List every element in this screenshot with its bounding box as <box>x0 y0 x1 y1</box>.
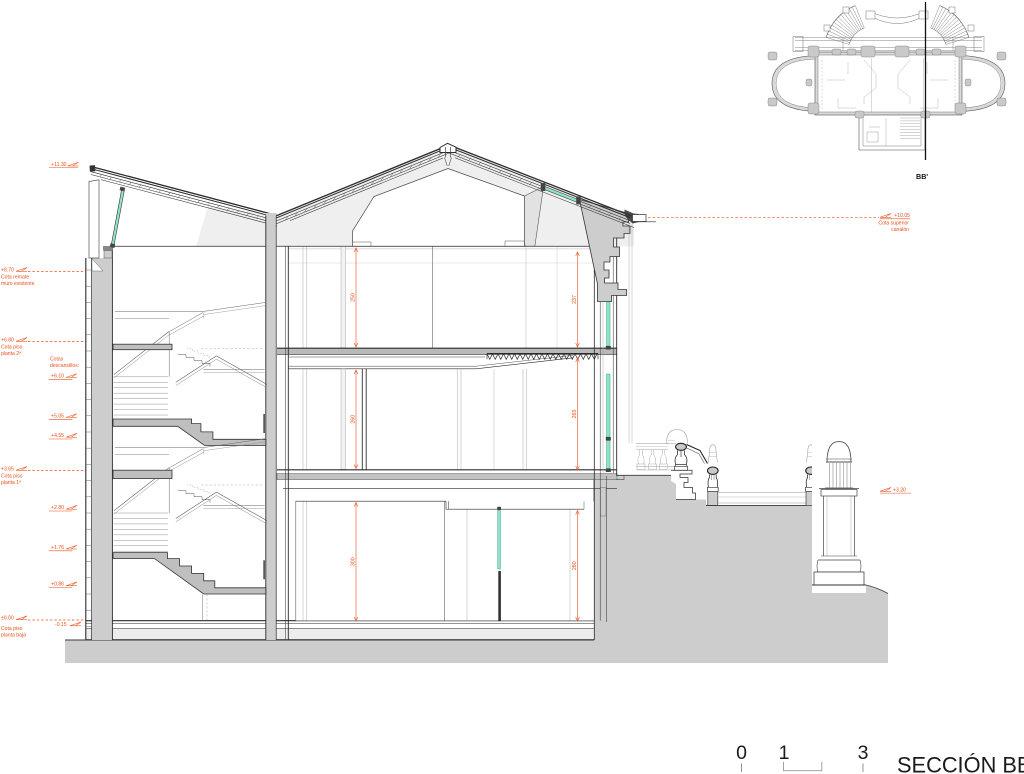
svg-text:canalón: canalón <box>891 227 909 233</box>
svg-text:265: 265 <box>572 410 578 419</box>
svg-text:+0.86: +0.86 <box>51 582 64 588</box>
svg-text:1: 1 <box>779 742 790 764</box>
svg-text:0: 0 <box>736 742 747 764</box>
svg-text:+2.80: +2.80 <box>51 505 64 511</box>
svg-text:planta 1ª: planta 1ª <box>1 480 21 486</box>
svg-text:Cota superior: Cota superior <box>878 220 909 226</box>
svg-text:Cotas: Cotas <box>50 357 64 363</box>
svg-text:+3.20: +3.20 <box>893 487 906 493</box>
svg-text:280: 280 <box>572 561 578 570</box>
svg-text:3: 3 <box>858 742 869 764</box>
svg-text:250: 250 <box>351 293 357 302</box>
svg-text:300: 300 <box>351 557 357 566</box>
svg-text:+10.05: +10.05 <box>894 213 910 219</box>
svg-text:muro existente: muro existente <box>1 281 35 287</box>
svg-text:planta baja: planta baja <box>1 633 26 639</box>
svg-text:+6.80: +6.80 <box>1 337 14 343</box>
svg-text:+1.76: +1.76 <box>51 545 64 551</box>
svg-text:+11.30: +11.30 <box>51 162 67 168</box>
svg-text:BB': BB' <box>916 172 928 181</box>
svg-text:Cota piso: Cota piso <box>1 345 23 351</box>
svg-text:±0.00: ±0.00 <box>1 616 14 622</box>
svg-text:Cota remate: Cota remate <box>1 275 29 281</box>
svg-text:+8.70: +8.70 <box>1 267 14 273</box>
svg-text:+3.65: +3.65 <box>1 466 14 472</box>
svg-text:+5.05: +5.05 <box>51 414 64 420</box>
svg-text:237: 237 <box>572 295 578 304</box>
svg-text:+6.10: +6.10 <box>51 374 64 380</box>
svg-text:-0.15: -0.15 <box>55 622 67 628</box>
svg-text:260: 260 <box>351 415 357 424</box>
svg-text:descansillos:: descansillos: <box>50 363 79 369</box>
svg-text:planta 2ª: planta 2ª <box>1 351 21 357</box>
svg-text:+4.55: +4.55 <box>51 433 64 439</box>
svg-text:SECCIÓN BB': SECCIÓN BB' <box>897 753 1024 774</box>
svg-text:Cota piso: Cota piso <box>1 474 23 480</box>
svg-text:Cota piso: Cota piso <box>1 626 23 632</box>
